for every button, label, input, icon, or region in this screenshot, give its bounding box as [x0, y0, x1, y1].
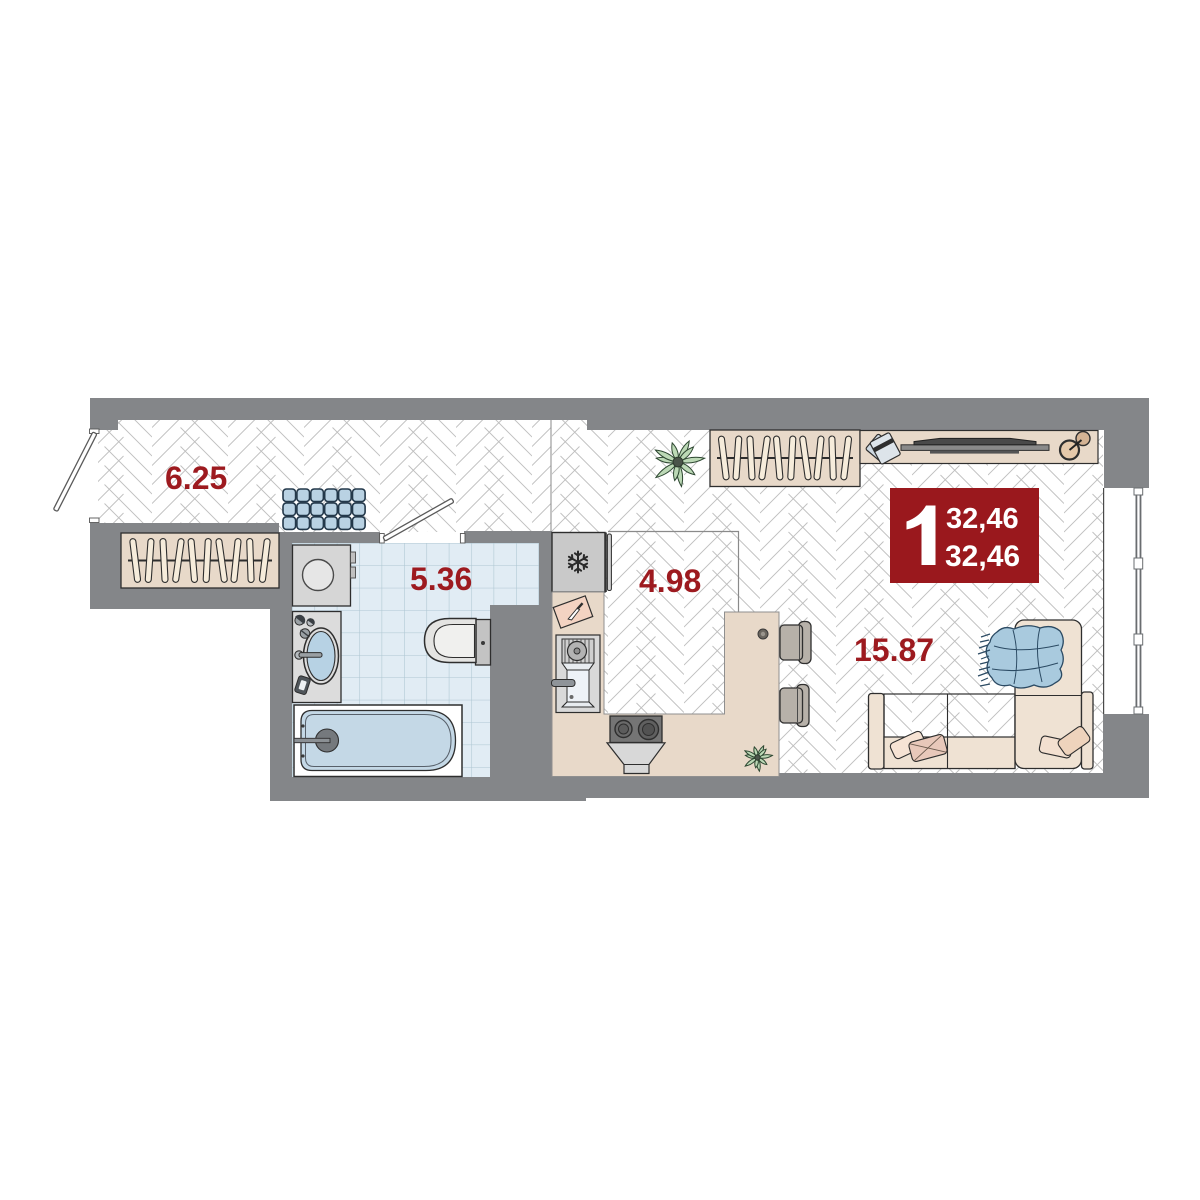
svg-text:15.87: 15.87: [854, 632, 934, 668]
svg-text:5.36: 5.36: [410, 561, 472, 597]
svg-text:32,46: 32,46: [946, 503, 1019, 535]
svg-text:4.98: 4.98: [639, 563, 701, 599]
svg-text:6.25: 6.25: [165, 460, 227, 496]
svg-text:32,46: 32,46: [945, 540, 1020, 573]
